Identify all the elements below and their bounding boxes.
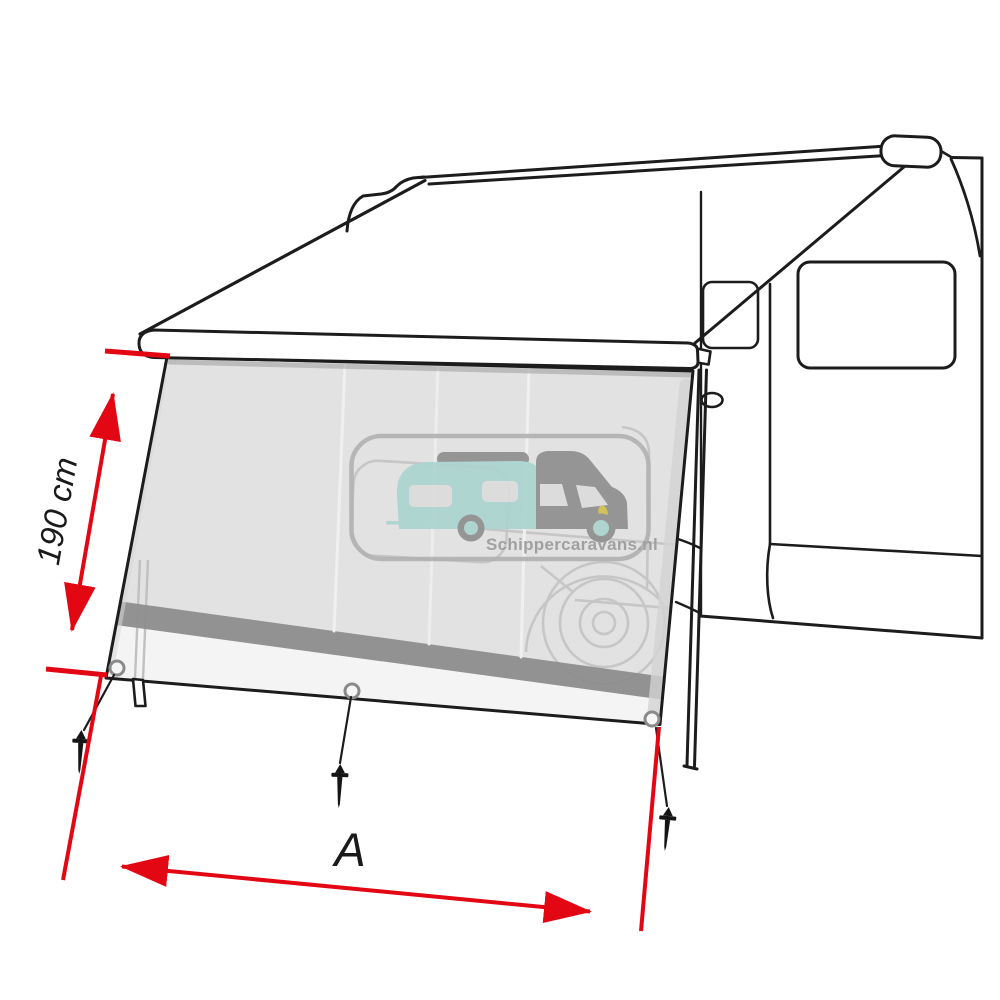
watermark-towbar-line bbox=[386, 521, 458, 525]
vehicle-front-curve bbox=[951, 159, 980, 256]
awning-panel-diagram: Schippercaravans.nl bbox=[0, 0, 1000, 1000]
vehicle-front-corner-seam bbox=[678, 539, 700, 548]
watermark-wheel-hub bbox=[464, 521, 478, 535]
awning-fabric-left-edge bbox=[140, 181, 425, 335]
height-dimension-arrow bbox=[72, 394, 113, 630]
ground-peg bbox=[656, 806, 677, 851]
width-dim-extension-left bbox=[63, 676, 101, 880]
front-panel: Schippercaravans.nl bbox=[106, 357, 693, 725]
watermark-text: Schippercaravans.nl bbox=[486, 535, 658, 554]
vehicle-roof-line bbox=[952, 158, 982, 159]
height-dim-tick-bottom bbox=[46, 669, 107, 675]
watermark-window bbox=[409, 485, 452, 507]
watermark-wheel-hub bbox=[593, 520, 609, 536]
watermark-window bbox=[482, 481, 518, 502]
grommet bbox=[110, 661, 124, 675]
height-dimension-label: 190 cm bbox=[29, 455, 84, 568]
width-dimension-label: A bbox=[331, 823, 365, 876]
awning-roller-case bbox=[880, 135, 941, 168]
ground-peg bbox=[330, 764, 349, 809]
awning-case-bracket bbox=[941, 151, 951, 157]
vehicle-skirt-seam bbox=[770, 544, 982, 556]
awning-roof-line-lower bbox=[429, 154, 910, 184]
left-support-leg bbox=[133, 679, 146, 706]
vehicle-roof-spoiler bbox=[347, 177, 424, 231]
grommet bbox=[645, 712, 659, 726]
vehicle-bottom-edge bbox=[700, 616, 982, 638]
vehicle-front-corner-bottom bbox=[676, 602, 700, 613]
awning-roof-line-upper bbox=[420, 144, 915, 178]
tie-line bbox=[340, 697, 351, 763]
vehicle-door-seam-lower bbox=[767, 544, 773, 618]
width-dim-extension-right bbox=[641, 727, 659, 931]
awning-fabric-side-edge bbox=[695, 161, 911, 343]
ground-pegs bbox=[71, 730, 678, 852]
vehicle-window bbox=[798, 262, 955, 368]
diagram-canvas: Schippercaravans.nl bbox=[0, 0, 1000, 1000]
grommet bbox=[345, 684, 359, 698]
awning bbox=[140, 135, 951, 343]
